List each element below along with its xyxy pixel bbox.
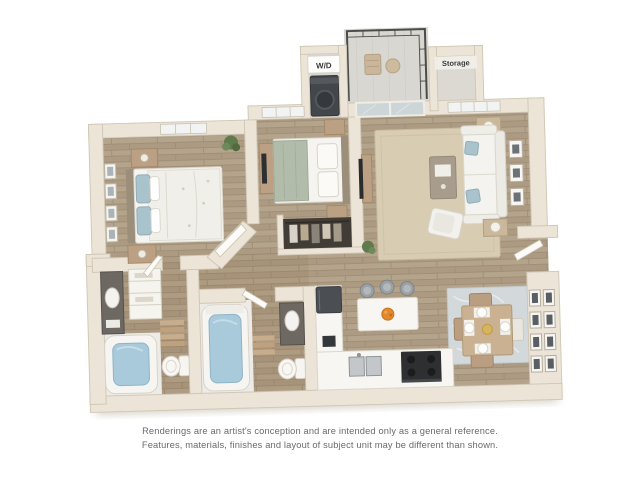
storage-label: Storage (442, 58, 470, 68)
vanity (101, 272, 125, 335)
balcony-table (386, 59, 400, 73)
sofa (461, 125, 508, 224)
floor-plan-rendering: W/D Storage (0, 0, 640, 480)
toilet (278, 358, 306, 379)
bathtub (201, 304, 249, 391)
tv (261, 153, 267, 183)
green-duvet (273, 140, 309, 201)
pillow (136, 175, 151, 203)
bedroom2-window (262, 106, 304, 117)
laundry-closet: W/D (308, 53, 342, 118)
pillow (464, 141, 478, 155)
disclaimer: Renderings are an artist's conception an… (0, 424, 640, 452)
centerpiece (482, 324, 492, 334)
sink (105, 288, 120, 308)
disclaimer-line-1: Renderings are an artist's conception an… (0, 424, 640, 438)
towels (106, 320, 120, 328)
wall-art-frames (509, 140, 524, 205)
bathtub (104, 335, 158, 394)
master-bed (126, 167, 224, 244)
disclaimer-line-2: Features, materials, finishes and layout… (0, 438, 640, 452)
pillow (318, 171, 339, 197)
floor-plan-page: W/D Storage (0, 0, 640, 480)
pillow (466, 189, 481, 204)
sink (285, 311, 300, 331)
linen-shelf (128, 268, 161, 319)
balcony-chair (365, 54, 382, 74)
coffee-maker (322, 336, 335, 347)
lamp (138, 250, 146, 258)
tub-shelf (206, 305, 244, 314)
dining-table (462, 305, 513, 356)
master-window (160, 123, 206, 134)
towel-shelf (252, 335, 275, 355)
stove (401, 351, 442, 383)
washer-dryer-label: W/D (316, 61, 332, 70)
bed-2 (273, 135, 350, 205)
closet (283, 217, 352, 249)
kitchen-island (357, 297, 418, 331)
vanity (279, 302, 304, 345)
pillow (137, 207, 152, 235)
toilet (162, 356, 190, 377)
sink-basin (349, 357, 365, 376)
fruit-bowl (382, 308, 394, 320)
nightstand (324, 119, 344, 135)
pillow (317, 143, 338, 169)
storage-closet: Storage (435, 56, 477, 70)
coffee-table (429, 156, 456, 199)
lamp (140, 154, 148, 162)
lamp (490, 222, 500, 232)
sink-basin (366, 356, 382, 375)
